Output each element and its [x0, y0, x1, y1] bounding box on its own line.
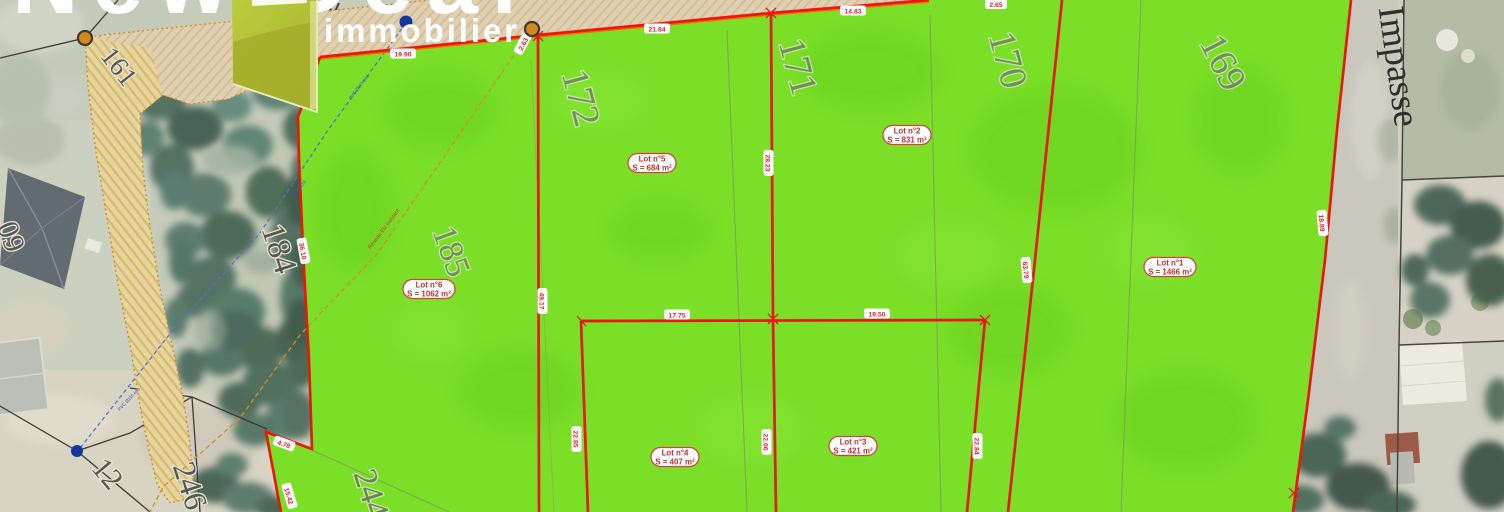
svg-text:S = 421 m²: S = 421 m² [833, 447, 873, 456]
svg-text:S = 831 m²: S = 831 m² [887, 136, 927, 145]
svg-text:immobilier: immobilier [324, 12, 517, 49]
svg-text:18.89: 18.89 [1317, 214, 1325, 232]
svg-text:22.06: 22.06 [761, 433, 768, 450]
svg-text:22.85: 22.85 [571, 430, 578, 447]
svg-text:2.65: 2.65 [989, 2, 1002, 9]
svg-text:S = 1466 m²: S = 1466 m² [1148, 268, 1192, 277]
svg-text:Lot n°5: Lot n°5 [639, 155, 666, 164]
svg-text:17.75: 17.75 [668, 313, 685, 320]
svg-text:S = 407 m²: S = 407 m² [655, 458, 695, 467]
svg-text:19.90: 19.90 [394, 52, 411, 59]
svg-text:21.84: 21.84 [648, 27, 665, 34]
svg-text:Lot n°6: Lot n°6 [416, 281, 443, 290]
svg-text:Lot n°4: Lot n°4 [662, 449, 689, 458]
svg-text:49.17: 49.17 [537, 292, 544, 309]
svg-text:14.83: 14.83 [844, 9, 861, 16]
svg-text:22.84: 22.84 [972, 437, 979, 454]
svg-text:19.50: 19.50 [868, 312, 885, 319]
svg-text:63.79: 63.79 [1021, 261, 1029, 279]
svg-text:Lot n°3: Lot n°3 [840, 438, 867, 447]
svg-text:28.23: 28.23 [763, 154, 770, 171]
svg-text:Lot n°1: Lot n°1 [1157, 259, 1184, 268]
svg-text:S = 684 m²: S = 684 m² [632, 164, 672, 173]
svg-text:S = 1062 m²: S = 1062 m² [407, 290, 451, 299]
svg-text:Lot n°2: Lot n°2 [894, 127, 921, 136]
